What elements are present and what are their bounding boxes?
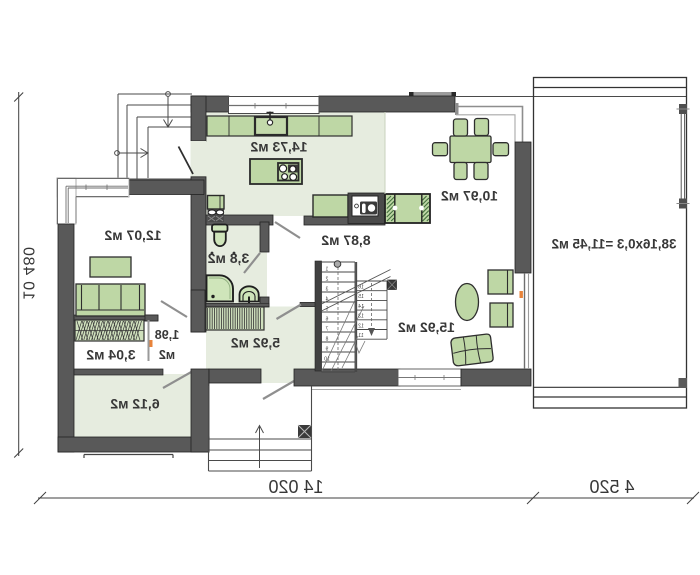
svg-text:15,92 м2: 15,92 м2: [398, 319, 455, 335]
svg-text:5,92 м2: 5,92 м2: [231, 335, 280, 351]
svg-text:16: 16: [358, 285, 364, 291]
svg-text:14: 14: [358, 304, 364, 310]
svg-text:4 520: 4 520: [589, 477, 634, 497]
svg-text:12,07 м2: 12,07 м2: [104, 227, 161, 243]
svg-text:9: 9: [325, 347, 328, 353]
svg-text:3,04 м2: 3,04 м2: [86, 347, 135, 363]
svg-text:2: 2: [325, 277, 328, 283]
svg-text:14 020: 14 020: [268, 477, 323, 497]
svg-text:м2: м2: [159, 348, 175, 362]
svg-text:3,8 м2: 3,8 м2: [208, 250, 250, 266]
svg-text:3: 3: [325, 287, 328, 293]
svg-text:7: 7: [325, 327, 328, 333]
svg-text:13: 13: [358, 314, 364, 320]
svg-text:15: 15: [358, 294, 364, 300]
svg-text:10 480: 10 480: [20, 246, 37, 300]
svg-text:6: 6: [325, 317, 328, 323]
svg-text:38,16x0,3 =11,45 м2: 38,16x0,3 =11,45 м2: [552, 237, 677, 252]
svg-text:8: 8: [325, 337, 328, 343]
svg-text:6,12 м2: 6,12 м2: [110, 396, 159, 412]
svg-text:1: 1: [325, 267, 328, 273]
svg-text:5: 5: [325, 307, 328, 313]
svg-text:4: 4: [325, 297, 328, 303]
svg-text:10: 10: [324, 357, 330, 363]
svg-text:12: 12: [358, 323, 364, 329]
svg-text:11: 11: [358, 333, 363, 339]
svg-text:10,97 м2: 10,97 м2: [441, 188, 498, 204]
svg-text:14,73 м2: 14,73 м2: [250, 139, 307, 155]
svg-text:1,98: 1,98: [155, 328, 180, 342]
svg-text:8,87 м2: 8,87 м2: [321, 232, 370, 248]
